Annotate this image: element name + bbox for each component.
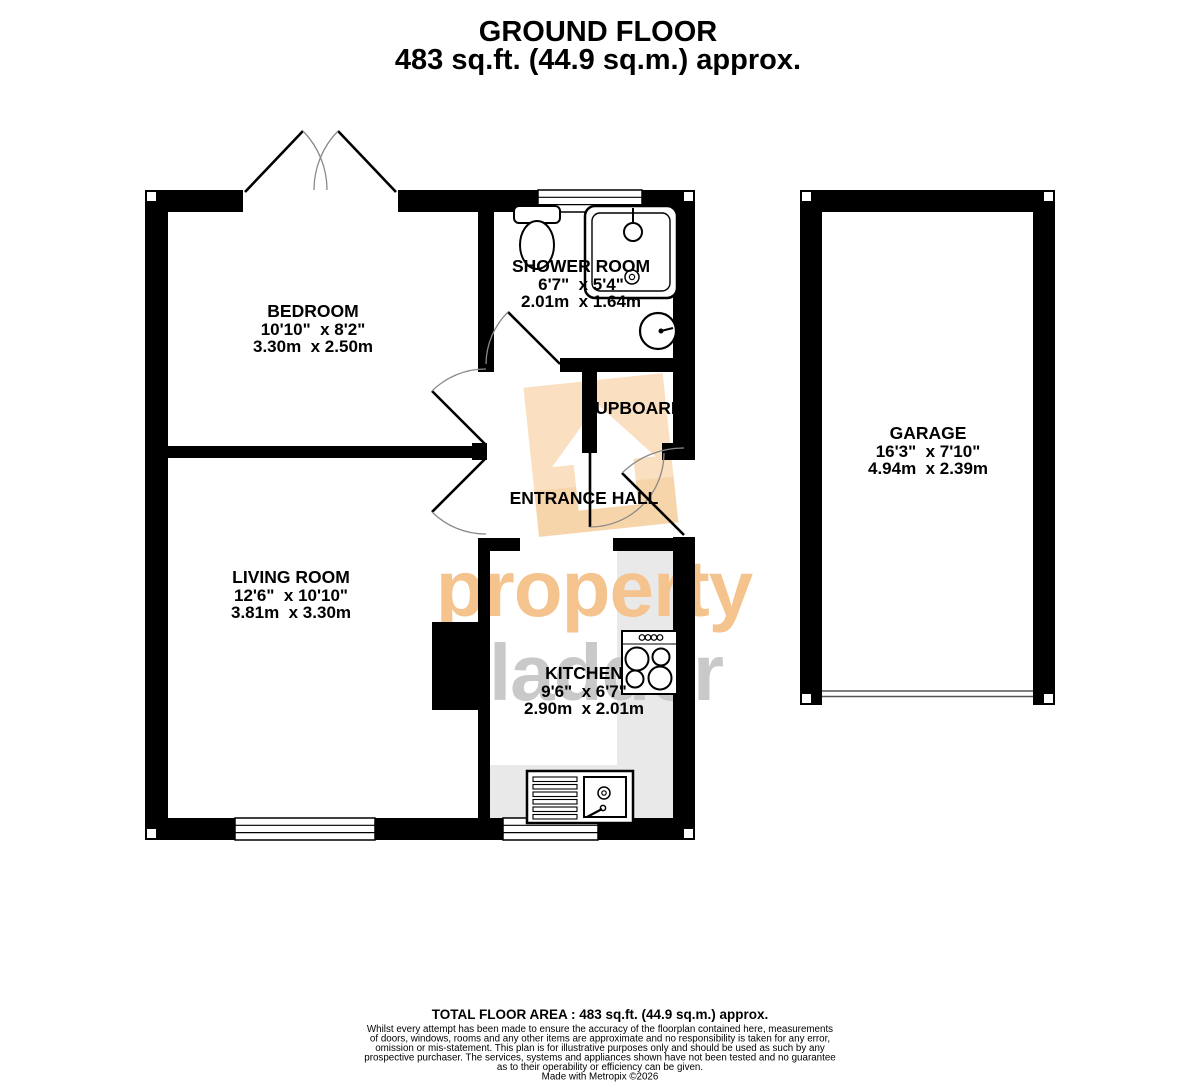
entrance-hall-name: ENTRANCE HALL — [510, 488, 659, 508]
kitchen-name: KITCHEN — [545, 663, 623, 683]
shower-room-name: SHOWER ROOM — [512, 256, 650, 276]
living-room-window — [235, 818, 375, 840]
room-label-entrance-hall: ENTRANCE HALL — [510, 488, 659, 508]
metropix-credit: Made with Metropix ©2026 — [542, 1072, 659, 1082]
bedroom-name: BEDROOM — [267, 301, 358, 321]
bedroom-dim-metric: 3.30m x 2.50m — [253, 337, 373, 356]
kitchen-sink-icon — [527, 771, 633, 823]
hob-icon — [622, 631, 677, 694]
garage-name: GARAGE — [890, 423, 967, 443]
kitchen-dim-metric: 2.90m x 2.01m — [524, 699, 644, 718]
cupboard-name: CUPBOARD — [582, 398, 683, 418]
room-label-cupboard: CUPBOARD — [582, 398, 683, 418]
chimney-breast — [432, 622, 478, 710]
living-room-dim-metric: 3.81m x 3.30m — [231, 603, 351, 622]
room-label-living-room: LIVING ROOM 12'6" x 10'10" 3.81m x 3.30m — [231, 567, 351, 622]
floorplan-svg: GROUND FLOOR 483 sq.ft. (44.9 sq.m.) app… — [0, 0, 1200, 1082]
title-line2: 483 sq.ft. (44.9 sq.m.) approx. — [395, 44, 801, 76]
basin-icon — [640, 313, 676, 349]
background — [0, 0, 1200, 1082]
shower-room-dim-metric: 2.01m x 1.64m — [521, 292, 641, 311]
total-floor-area: TOTAL FLOOR AREA : 483 sq.ft. (44.9 sq.m… — [432, 1007, 769, 1022]
garage-dim-metric: 4.94m x 2.39m — [868, 459, 988, 478]
living-room-name: LIVING ROOM — [232, 567, 350, 587]
floorplan-page: GROUND FLOOR 483 sq.ft. (44.9 sq.m.) app… — [0, 0, 1200, 1082]
room-label-bedroom: BEDROOM 10'10" x 8'2" 3.30m x 2.50m — [253, 301, 373, 356]
